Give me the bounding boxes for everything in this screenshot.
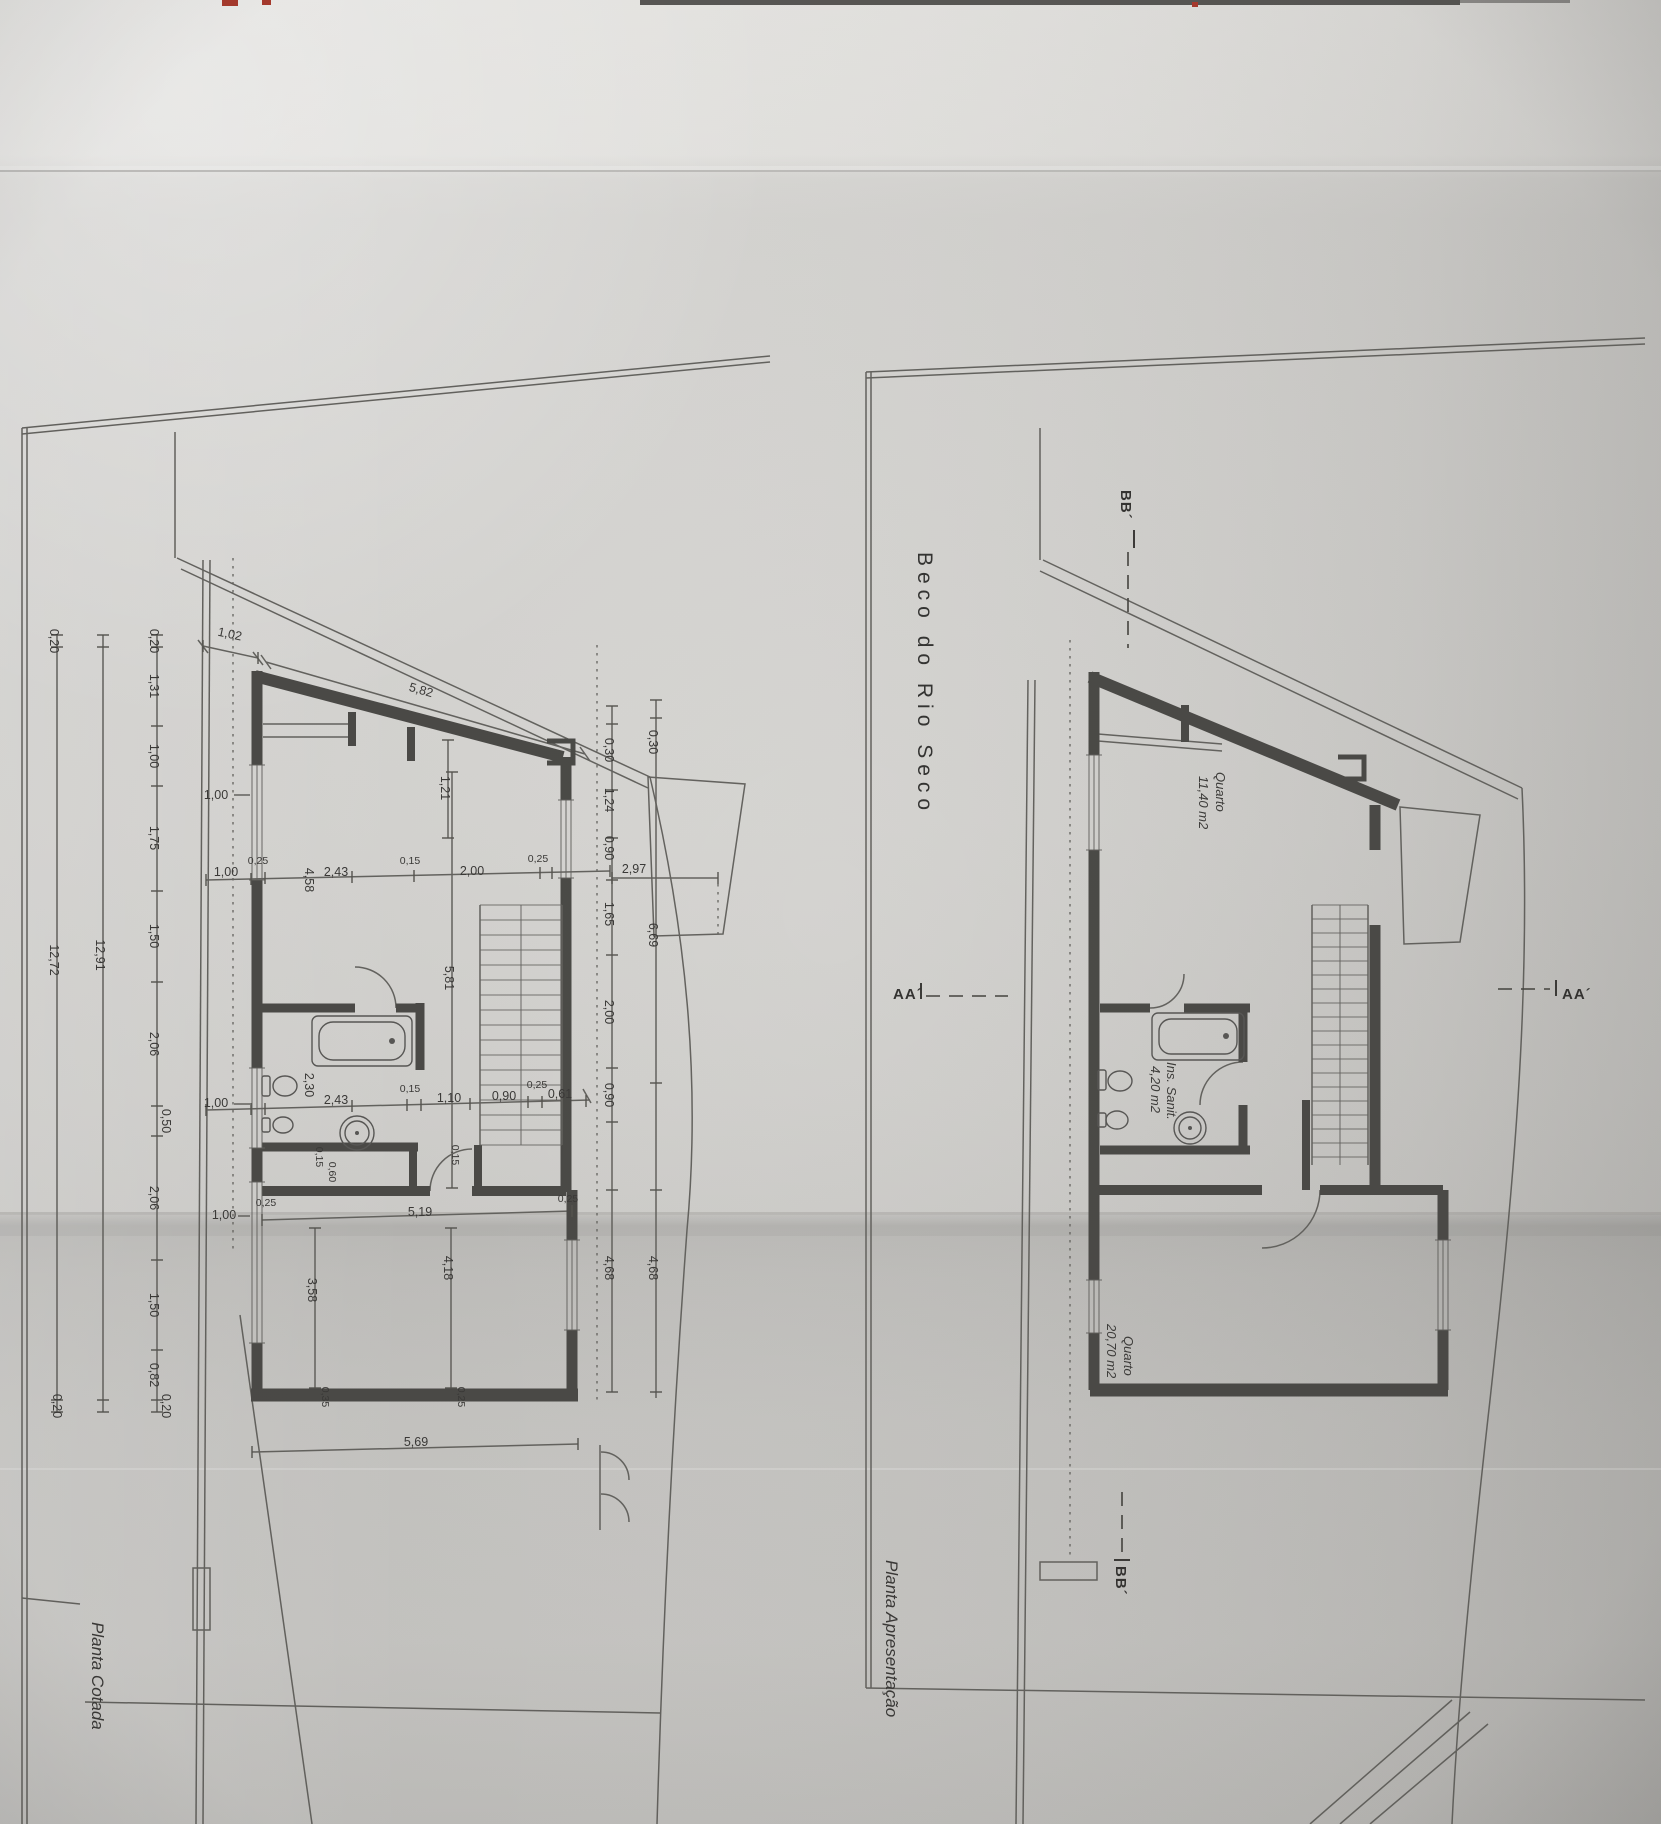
floor-plan-drawing: 0,20 12,72 0,20 12,91 0,20 1,31 1,00 1,7…: [0, 0, 1661, 1824]
photo-vignette: [0, 0, 1661, 1824]
scanned-floor-plan-photo: 0,20 12,72 0,20 12,91 0,20 1,31 1,00 1,7…: [0, 0, 1661, 1824]
